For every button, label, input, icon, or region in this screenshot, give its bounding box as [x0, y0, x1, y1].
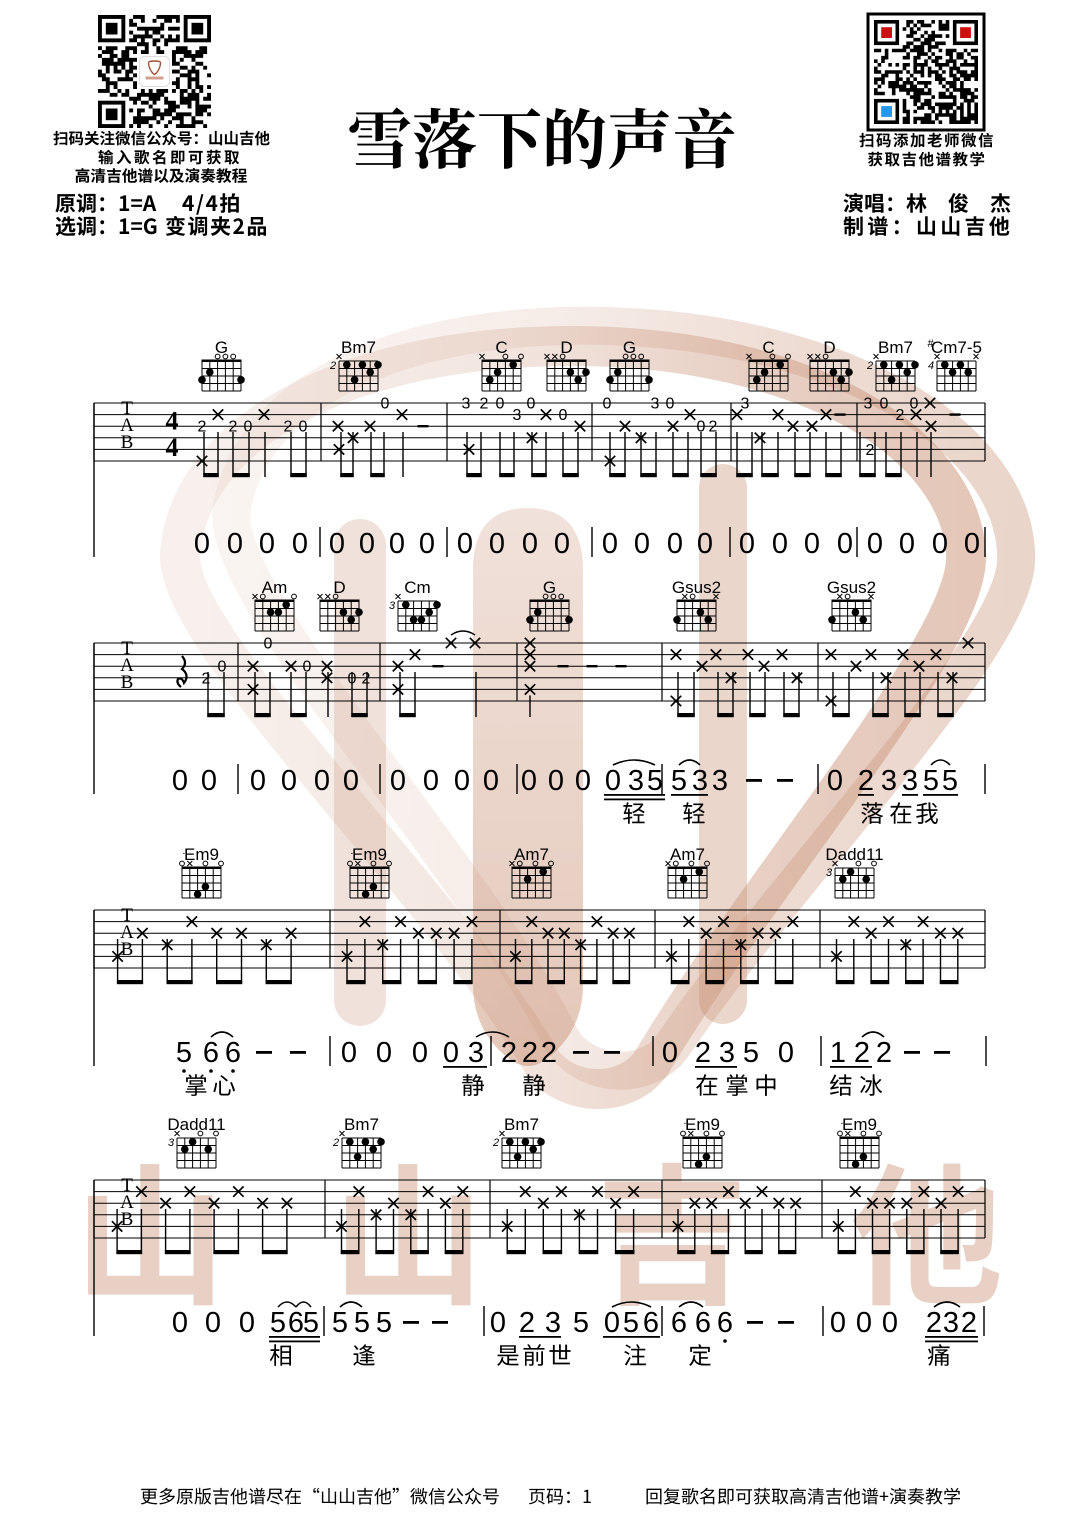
- svg-text:B: B: [121, 939, 134, 960]
- svg-text:2: 2: [541, 1037, 557, 1069]
- svg-text:0: 0: [454, 765, 470, 797]
- svg-text:0: 0: [880, 396, 889, 413]
- svg-text:3: 3: [468, 1037, 484, 1069]
- svg-text:6: 6: [288, 1307, 304, 1339]
- svg-text:2: 2: [198, 419, 207, 436]
- svg-text:0: 0: [201, 765, 217, 797]
- svg-text:6: 6: [225, 1037, 241, 1069]
- svg-text:0: 0: [489, 528, 505, 560]
- svg-text:3: 3: [712, 765, 728, 797]
- svg-text:3: 3: [826, 867, 833, 879]
- svg-text:B: B: [121, 432, 134, 453]
- svg-text:3: 3: [628, 765, 644, 797]
- svg-text:0: 0: [778, 1037, 794, 1069]
- svg-text:3: 3: [651, 396, 660, 413]
- svg-text:5: 5: [623, 1307, 639, 1339]
- svg-text:0: 0: [575, 765, 591, 797]
- svg-text:5: 5: [354, 1307, 370, 1339]
- svg-text:0: 0: [772, 528, 788, 560]
- svg-text:3: 3: [902, 765, 918, 797]
- svg-text:2: 2: [854, 1037, 870, 1069]
- svg-text:2: 2: [329, 360, 336, 372]
- svg-text:5: 5: [332, 1307, 348, 1339]
- svg-text:2: 2: [876, 1037, 892, 1069]
- svg-text:0: 0: [932, 528, 948, 560]
- svg-text:0: 0: [882, 1307, 898, 1339]
- svg-text:#: #: [927, 338, 934, 350]
- svg-text:B: B: [121, 672, 134, 693]
- svg-text:3: 3: [719, 1037, 735, 1069]
- svg-text:2: 2: [519, 1307, 535, 1339]
- svg-text:5: 5: [303, 1307, 319, 1339]
- svg-text:0: 0: [194, 528, 210, 560]
- svg-text:5: 5: [270, 1307, 286, 1339]
- svg-text:3: 3: [462, 396, 471, 413]
- svg-text:0: 0: [205, 1307, 221, 1339]
- svg-text:0: 0: [856, 1307, 872, 1339]
- svg-text:2: 2: [501, 1037, 517, 1069]
- svg-text:0: 0: [390, 765, 406, 797]
- svg-text:0: 0: [381, 396, 390, 413]
- svg-text:0: 0: [662, 1037, 678, 1069]
- svg-text:0: 0: [667, 528, 683, 560]
- svg-text:3: 3: [389, 600, 396, 612]
- svg-text:Bm7: Bm7: [878, 338, 913, 357]
- svg-text:0: 0: [603, 396, 612, 413]
- svg-text:Am: Am: [262, 578, 288, 597]
- svg-text:5: 5: [647, 765, 663, 797]
- svg-text:0: 0: [218, 659, 227, 676]
- svg-text:.: .: [683, 1115, 686, 1127]
- svg-text:0: 0: [837, 528, 853, 560]
- svg-text:Bm7: Bm7: [341, 338, 376, 357]
- svg-text:2: 2: [961, 1307, 977, 1339]
- svg-text:0: 0: [867, 528, 883, 560]
- svg-text:0: 0: [292, 528, 308, 560]
- svg-text:4: 4: [928, 360, 934, 372]
- svg-text:Em9: Em9: [184, 845, 219, 864]
- svg-text:2: 2: [480, 396, 489, 413]
- svg-text:0: 0: [522, 528, 538, 560]
- svg-text:Em9: Em9: [352, 845, 387, 864]
- svg-text:0: 0: [697, 528, 713, 560]
- svg-text:2: 2: [695, 1037, 711, 1069]
- svg-text:0: 0: [559, 407, 568, 424]
- svg-text:0: 0: [172, 765, 188, 797]
- svg-text:3: 3: [881, 765, 897, 797]
- svg-text:6: 6: [671, 1307, 687, 1339]
- svg-text:0: 0: [359, 528, 375, 560]
- svg-text:.: .: [182, 845, 185, 857]
- svg-text:2: 2: [332, 1137, 339, 1149]
- svg-text:0: 0: [329, 528, 345, 560]
- svg-text:0: 0: [412, 1037, 428, 1069]
- svg-text:0: 0: [521, 765, 537, 797]
- svg-text:5: 5: [743, 1037, 759, 1069]
- svg-text:Em9: Em9: [685, 1115, 720, 1134]
- svg-text:2: 2: [866, 360, 873, 372]
- svg-text:0: 0: [490, 1307, 506, 1339]
- svg-text:5: 5: [176, 1037, 192, 1069]
- svg-text:Cm: Cm: [404, 578, 430, 597]
- svg-text:0: 0: [389, 528, 405, 560]
- svg-text:0: 0: [554, 528, 570, 560]
- svg-text:3: 3: [692, 765, 708, 797]
- svg-text:0: 0: [804, 528, 820, 560]
- svg-text:0: 0: [343, 765, 359, 797]
- svg-text:0: 0: [341, 1037, 357, 1069]
- svg-text:0: 0: [443, 1037, 459, 1069]
- svg-text:0: 0: [527, 396, 536, 413]
- svg-text:0: 0: [739, 528, 755, 560]
- svg-text:0: 0: [419, 528, 435, 560]
- svg-text:0: 0: [899, 528, 915, 560]
- svg-text:0: 0: [244, 419, 253, 436]
- svg-text:0: 0: [605, 765, 621, 797]
- svg-text:0: 0: [250, 765, 266, 797]
- svg-text:2: 2: [866, 442, 875, 459]
- svg-text:0: 0: [376, 1037, 392, 1069]
- svg-text:0: 0: [314, 765, 330, 797]
- svg-text:0: 0: [239, 1307, 255, 1339]
- svg-text:0: 0: [264, 636, 273, 653]
- svg-text:1: 1: [830, 1037, 846, 1069]
- svg-text:3: 3: [943, 1307, 959, 1339]
- svg-text:0: 0: [457, 528, 473, 560]
- svg-text:2: 2: [492, 1137, 499, 1149]
- svg-text:0: 0: [548, 765, 564, 797]
- svg-text:0: 0: [666, 396, 675, 413]
- svg-text:0: 0: [281, 765, 297, 797]
- svg-text:0: 0: [634, 528, 650, 560]
- svg-text:3: 3: [168, 1137, 175, 1149]
- svg-text:Bm7: Bm7: [344, 1115, 379, 1134]
- svg-text:5: 5: [942, 765, 958, 797]
- svg-text:Em9: Em9: [842, 1115, 877, 1134]
- svg-text:0: 0: [423, 765, 439, 797]
- svg-text:0: 0: [964, 528, 980, 560]
- svg-text:5: 5: [376, 1307, 392, 1339]
- svg-text:2: 2: [362, 670, 371, 687]
- svg-text:2: 2: [858, 765, 874, 797]
- svg-text:0: 0: [830, 1307, 846, 1339]
- svg-text:2: 2: [896, 407, 905, 424]
- svg-text:0: 0: [496, 396, 505, 413]
- svg-text:0: 0: [604, 1307, 620, 1339]
- svg-text:5: 5: [923, 765, 939, 797]
- svg-text:0: 0: [602, 528, 618, 560]
- svg-text:4: 4: [166, 433, 179, 462]
- svg-text:6: 6: [203, 1037, 219, 1069]
- svg-text:0: 0: [227, 528, 243, 560]
- svg-text:3: 3: [513, 407, 522, 424]
- svg-text:0: 0: [303, 659, 312, 676]
- svg-text:6: 6: [643, 1307, 659, 1339]
- svg-text:5: 5: [671, 765, 687, 797]
- svg-text:.: .: [350, 845, 353, 857]
- svg-text:6: 6: [717, 1307, 733, 1339]
- svg-text:4: 4: [166, 407, 179, 436]
- svg-text:.: .: [840, 1115, 843, 1127]
- svg-text:2: 2: [202, 670, 211, 687]
- svg-text:5: 5: [573, 1307, 589, 1339]
- svg-text:0: 0: [483, 765, 499, 797]
- svg-text:3: 3: [545, 1307, 561, 1339]
- svg-text:3: 3: [864, 396, 873, 413]
- svg-text:6: 6: [695, 1307, 711, 1339]
- svg-text:0: 0: [827, 765, 843, 797]
- svg-text:2: 2: [926, 1307, 942, 1339]
- svg-text:2: 2: [522, 1037, 538, 1069]
- svg-text:Bm7: Bm7: [504, 1115, 539, 1134]
- svg-text:0: 0: [259, 528, 275, 560]
- svg-text:B: B: [121, 1209, 134, 1230]
- svg-text:0: 0: [172, 1307, 188, 1339]
